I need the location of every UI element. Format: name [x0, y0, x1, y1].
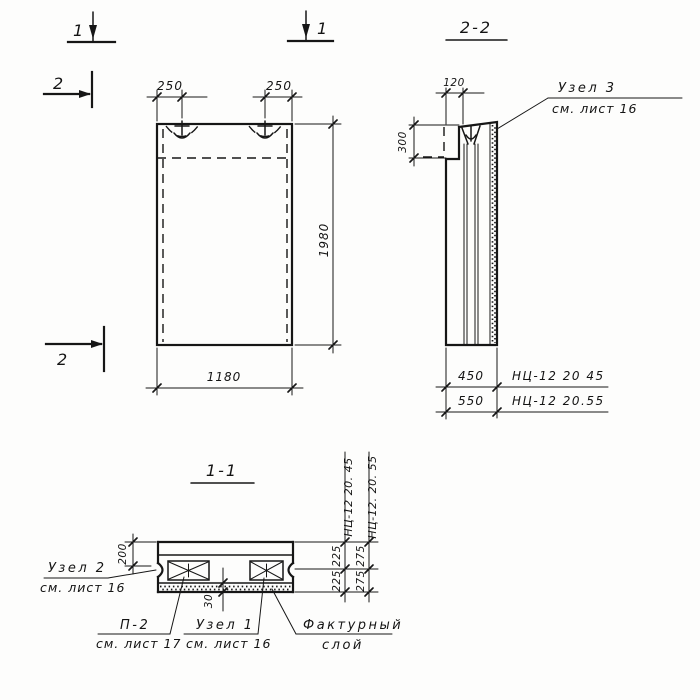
- dim-value: 550: [458, 394, 484, 408]
- facture-layer-callout: Фактурный слой: [272, 589, 403, 653]
- dim-value: 275: [355, 570, 367, 592]
- node-label: Узел 3: [558, 81, 617, 96]
- section-2-2-title: 2-2: [446, 18, 507, 40]
- section-marker-2-top: 2: [44, 72, 92, 107]
- node3-callout: Узел 3 см. лист 16: [497, 81, 682, 129]
- section-1-1-body: [158, 542, 293, 592]
- marker-label: 2: [57, 350, 69, 369]
- dimension-1980-height: 1980: [295, 116, 341, 353]
- node-ref: см. лист 16: [186, 636, 271, 651]
- dimension-250-right: 250: [253, 79, 302, 121]
- void-channel: [168, 561, 209, 580]
- node-label: Узел 2: [48, 561, 107, 576]
- dim-value: 225: [331, 545, 343, 567]
- blueprint-sheet: 1 1 2 2: [0, 0, 700, 700]
- dimension-1180-width: 1180: [146, 348, 303, 395]
- panel-mark: НЦ-12 20. 45: [342, 457, 355, 536]
- dim-value: 225: [331, 570, 343, 592]
- section-title: 1-1: [206, 461, 238, 480]
- node-label: Узел 1: [196, 618, 255, 633]
- drawing-canvas: 1 1 2 2: [0, 0, 700, 700]
- section-marker-1-right: 1: [288, 11, 333, 41]
- dimension-200-rib: 200: [117, 534, 156, 574]
- dimension-chains-right: 225 225 275 275 НЦ-12 20. 45 НЦ-12. 20. …: [295, 452, 379, 602]
- section-2-2-profile: [423, 122, 497, 345]
- joint-notch: [289, 563, 294, 577]
- node-label: Фактурный: [303, 618, 403, 633]
- marker-label: 2: [53, 74, 65, 93]
- dimension-120-top: 120: [436, 77, 484, 124]
- dimension-250-left: 250: [147, 79, 207, 121]
- dim-value: 200: [117, 543, 129, 565]
- section-marker-2-bottom: 2: [46, 327, 104, 371]
- front-view-panel: [157, 121, 292, 345]
- section-marker-1-left: 1: [68, 12, 115, 42]
- dim-value: 1180: [207, 370, 242, 384]
- dim-value: 450: [458, 369, 484, 383]
- panel-mark: НЦ-12 20.55: [512, 394, 605, 408]
- panel-mark: НЦ-12. 20. 55: [366, 455, 379, 538]
- marker-label: 1: [73, 21, 85, 40]
- dim-value: 300: [397, 131, 409, 153]
- dim-value: 250: [266, 79, 292, 93]
- node-label: слой: [322, 638, 364, 653]
- node-ref: см. лист 17: [96, 636, 181, 651]
- dim-value: 275: [355, 545, 367, 567]
- section-title: 2-2: [460, 18, 492, 37]
- joint-notch: [158, 563, 163, 577]
- node-ref: см. лист 16: [552, 101, 637, 116]
- dim-value: 30: [203, 594, 215, 608]
- void-channel: [250, 561, 283, 580]
- node-label: П-2: [120, 618, 150, 633]
- dim-value: 1980: [317, 223, 331, 258]
- marker-label: 1: [317, 19, 329, 38]
- dim-value: 250: [157, 79, 183, 93]
- section-1-1-title: 1-1: [191, 461, 254, 483]
- dim-value: 120: [443, 77, 465, 89]
- dimension-thickness-variants: 450 НЦ-12 20 45 550 НЦ-12 20.55: [436, 348, 608, 419]
- panel-mark: НЦ-12 20 45: [512, 369, 605, 383]
- node-ref: см. лист 16: [40, 580, 125, 595]
